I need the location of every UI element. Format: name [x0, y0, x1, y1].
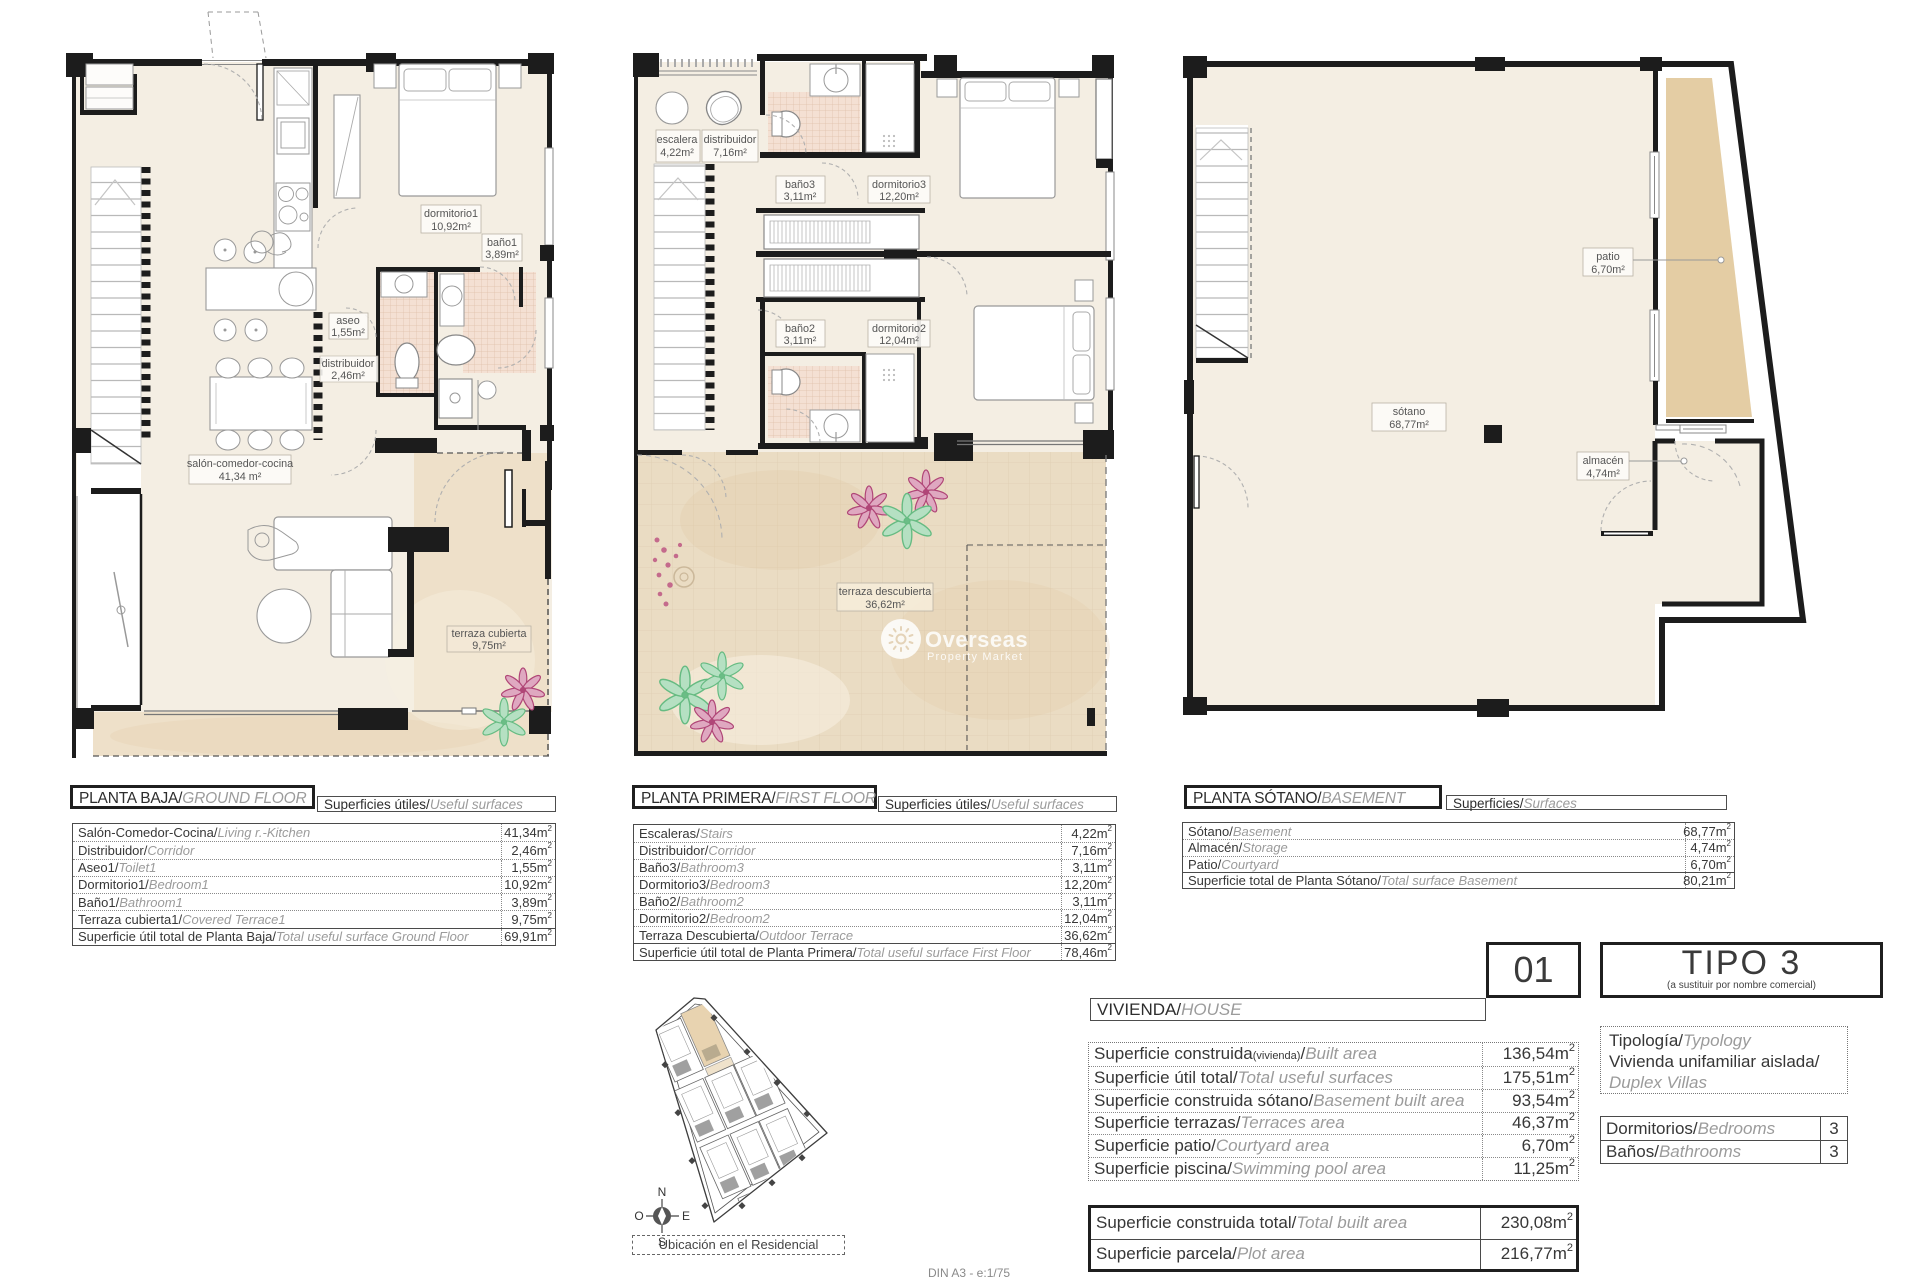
svg-text:36,62m²: 36,62m²: [865, 599, 905, 611]
svg-text:10,92m²: 10,92m²: [431, 221, 471, 233]
svg-text:N: N: [658, 1185, 667, 1199]
svg-text:dormitorio2: dormitorio2: [872, 323, 926, 335]
svg-text:68,77m²: 68,77m²: [1389, 419, 1429, 431]
svg-text:baño3: baño3: [785, 179, 815, 191]
svg-text:patio: patio: [1596, 251, 1619, 263]
svg-text:4,74m²: 4,74m²: [1586, 468, 1620, 480]
svg-text:E: E: [682, 1209, 690, 1223]
svg-text:7,16m²: 7,16m²: [713, 147, 747, 159]
svg-text:4,22m²: 4,22m²: [660, 147, 694, 159]
svg-text:12,04m²: 12,04m²: [879, 335, 919, 347]
svg-text:O: O: [634, 1209, 643, 1223]
svg-text:escalera: escalera: [657, 134, 698, 146]
svg-text:12,20m²: 12,20m²: [879, 191, 919, 203]
svg-text:distribuidor: distribuidor: [322, 358, 375, 370]
svg-text:3,89m²: 3,89m²: [485, 249, 519, 261]
svg-text:aseo: aseo: [336, 315, 359, 327]
svg-text:almacén: almacén: [1583, 455, 1624, 467]
svg-text:3,11m²: 3,11m²: [784, 191, 817, 203]
svg-text:dormitorio3: dormitorio3: [872, 179, 926, 191]
svg-text:9,75m²: 9,75m²: [472, 640, 506, 652]
svg-text:salón-comedor-cocina: salón-comedor-cocina: [187, 458, 293, 470]
svg-text:terraza descubierta: terraza descubierta: [839, 586, 931, 598]
svg-text:3,11m²: 3,11m²: [784, 335, 817, 347]
svg-text:6,70m²: 6,70m²: [1591, 264, 1625, 276]
svg-text:41,34 m²: 41,34 m²: [219, 471, 262, 483]
svg-text:baño1: baño1: [487, 237, 517, 249]
svg-text:sótano: sótano: [1393, 406, 1425, 418]
svg-text:baño2: baño2: [785, 323, 815, 335]
svg-text:Property Market: Property Market: [927, 651, 1023, 663]
svg-text:distribuidor: distribuidor: [704, 134, 757, 146]
svg-text:2,46m²: 2,46m²: [331, 370, 365, 382]
svg-text:Overseas: Overseas: [925, 627, 1028, 652]
svg-text:dormitorio1: dormitorio1: [424, 208, 478, 220]
svg-text:terraza cubierta: terraza cubierta: [451, 628, 526, 640]
svg-text:1,55m²: 1,55m²: [331, 327, 365, 339]
